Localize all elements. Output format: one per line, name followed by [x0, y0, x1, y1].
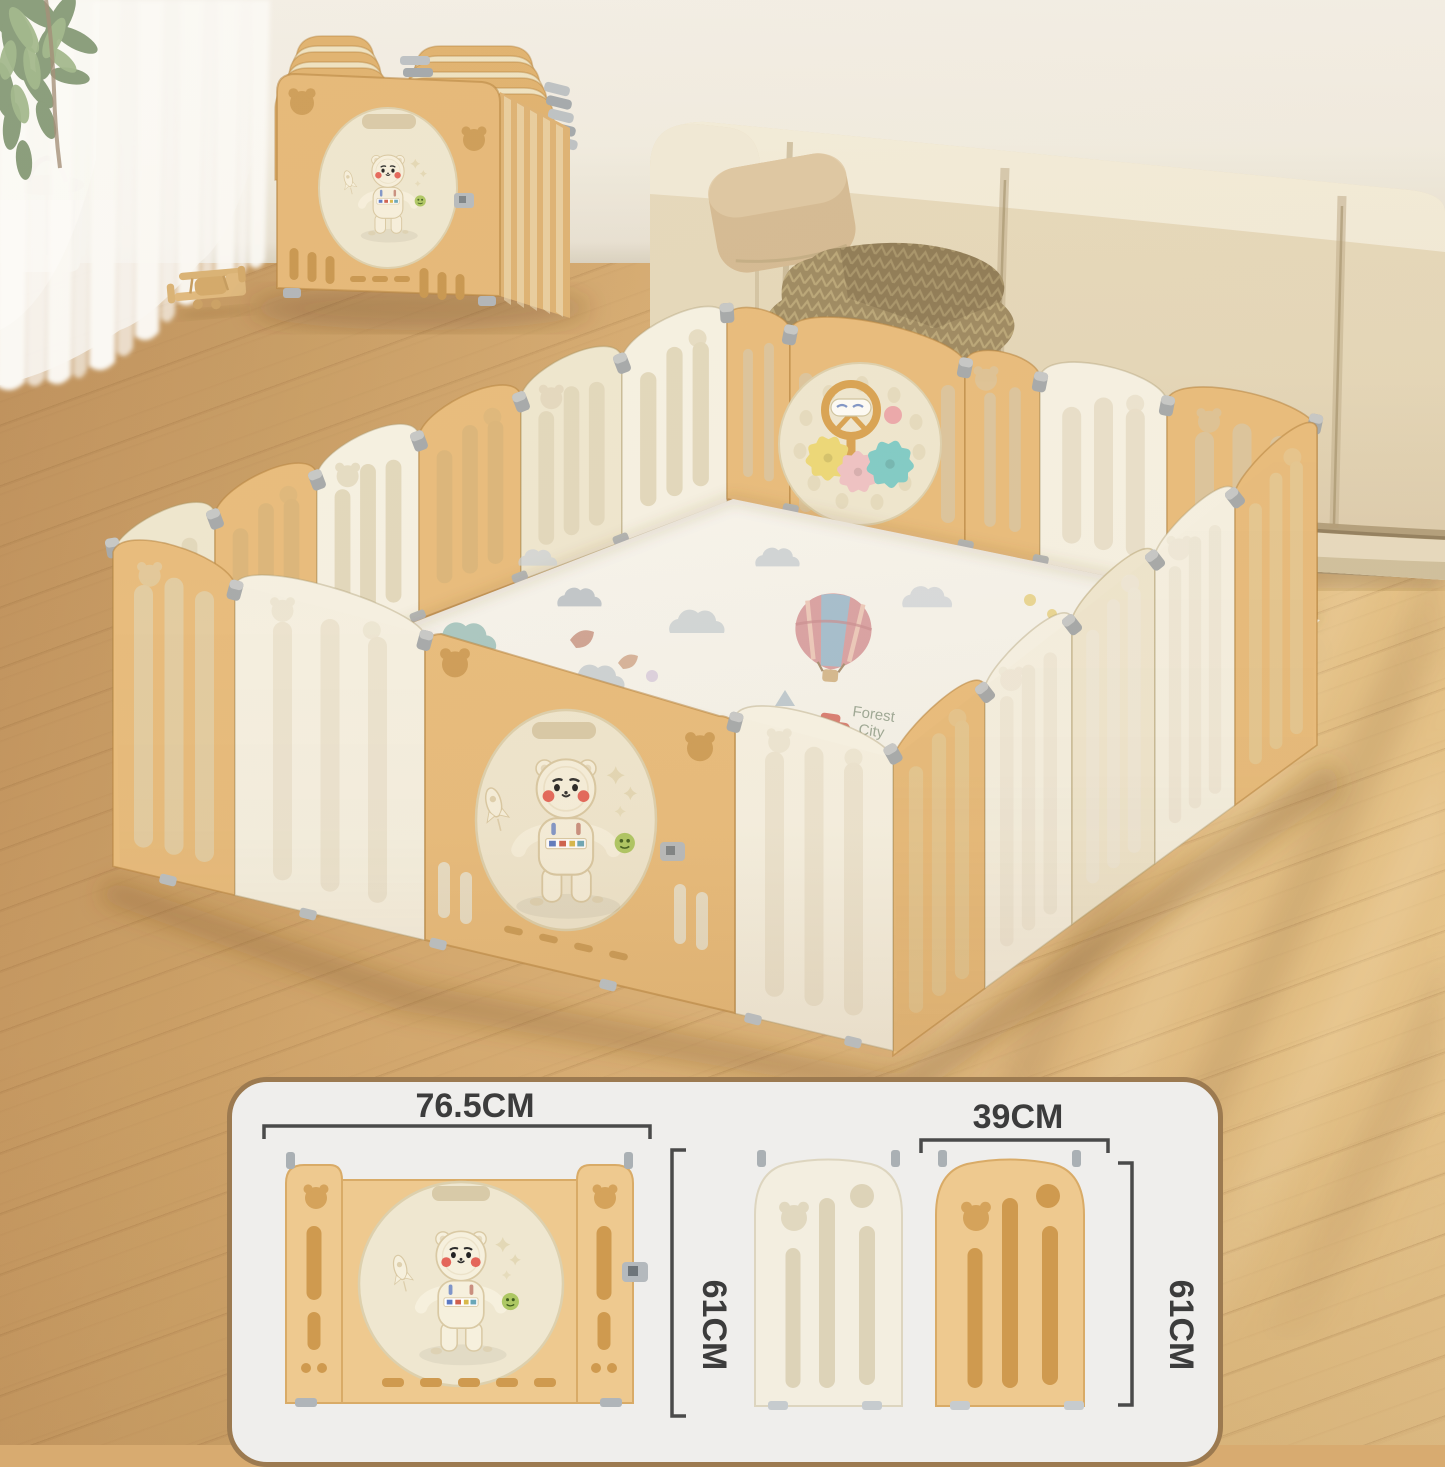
- svg-text:39CM: 39CM: [973, 1098, 1064, 1136]
- svg-text:61CM: 61CM: [695, 1280, 733, 1371]
- svg-text:61CM: 61CM: [1162, 1280, 1200, 1371]
- svg-text:76.5CM: 76.5CM: [415, 1087, 534, 1125]
